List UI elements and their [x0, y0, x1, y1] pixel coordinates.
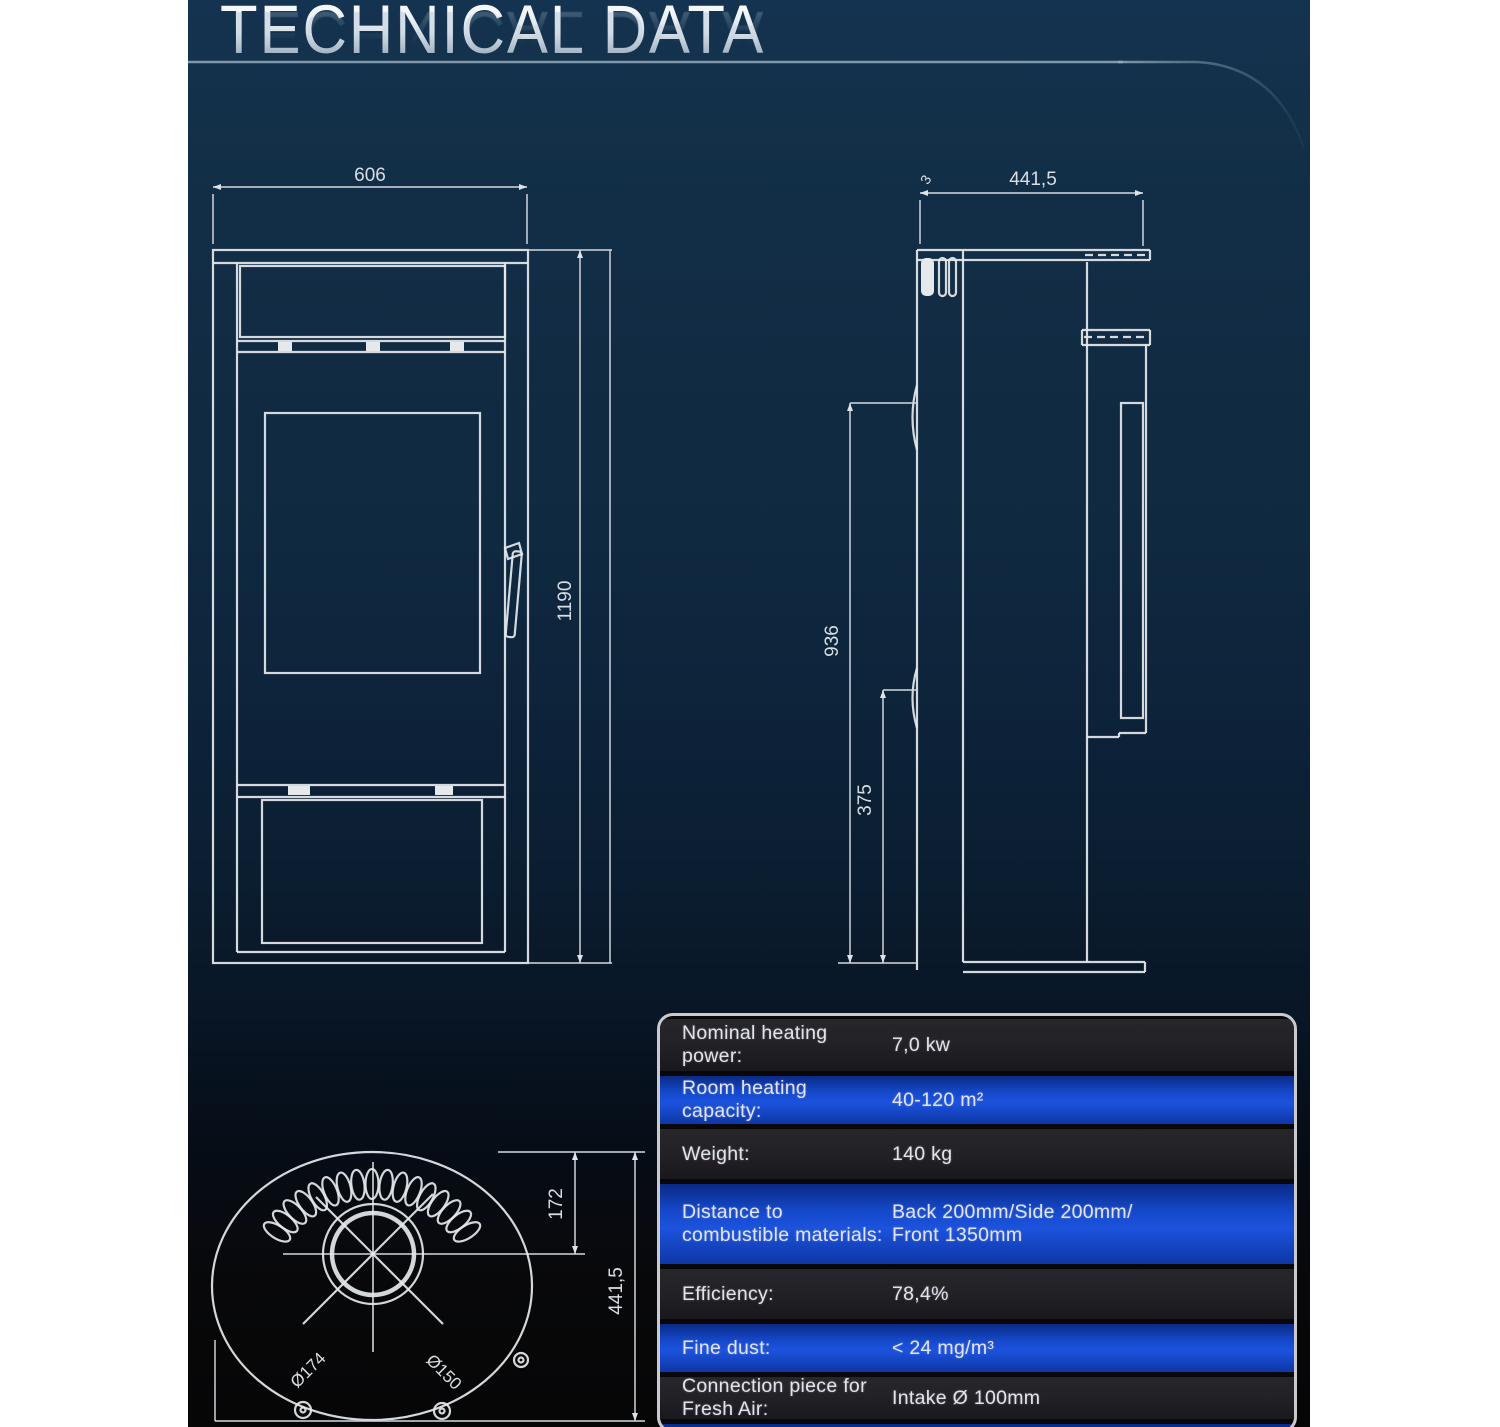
sheet-content: TECHNICAL DATA TECHNICAL DATA — [188, 0, 1310, 1427]
spec-row-fine-dust: Fine dust: < 24 mg/m³ — [660, 1324, 1294, 1372]
spec-row-distance: Distance to combustible materials: Back … — [660, 1184, 1294, 1264]
side-inset-dim: 3 — [917, 172, 935, 187]
spec-row-efficiency: Efficiency: 78,4% — [660, 1269, 1294, 1319]
front-view-drawing — [213, 250, 528, 963]
spec-label: Fine dust: — [660, 1337, 892, 1360]
spec-value: 7,0 kw — [892, 1034, 1294, 1057]
front-height-dim: 1190 — [555, 581, 576, 622]
spec-table: Nominal heating power: 7,0 kw Room heati… — [657, 1013, 1297, 1427]
spec-value: 40-120 m² — [892, 1089, 1294, 1112]
spec-value: 78,4% — [892, 1283, 1294, 1306]
top-view-dimensions — [215, 1152, 645, 1421]
top-view-drawing — [212, 1152, 585, 1420]
technical-data-sheet: TECHNICAL DATA TECHNICAL DATA — [0, 0, 1500, 1427]
top-depth-dim: 441,5 — [606, 1267, 627, 1315]
spec-value: Back 200mm/Side 200mm/ Front 1350mm — [892, 1201, 1294, 1247]
flue-inner-dia-label: Ø150 — [422, 1351, 465, 1394]
spec-value: Intake Ø 100mm — [892, 1387, 1294, 1410]
spec-label: Efficiency: — [660, 1283, 892, 1306]
spec-label: Weight: — [660, 1143, 892, 1166]
side-view-drawing — [913, 250, 1151, 972]
front-view-dimensions — [213, 187, 612, 963]
door-handle — [505, 543, 522, 637]
front-width-dim: 606 — [354, 165, 386, 186]
title-underline-swoosh — [188, 62, 1304, 148]
side-upper-height-dim: 936 — [822, 625, 843, 657]
spec-label: Distance to combustible materials: — [660, 1201, 892, 1247]
spec-label: Room heating capacity: — [660, 1077, 892, 1123]
top-vent-slots — [261, 1169, 483, 1245]
side-view-dimensions — [838, 193, 1143, 963]
spec-value: < 24 mg/m³ — [892, 1337, 1294, 1360]
spec-value: 140 kg — [892, 1143, 1294, 1166]
spec-value-line2: Front 1350mm — [892, 1224, 1294, 1247]
spec-row-fresh-air: Connection piece for Fresh Air: Intake Ø… — [660, 1377, 1294, 1419]
spec-row-nominal-power: Nominal heating power: 7,0 kw — [660, 1019, 1294, 1071]
stove-feet — [295, 1353, 528, 1419]
side-lower-height-dim: 375 — [855, 784, 876, 816]
spec-row-room-capacity: Room heating capacity: 40-120 m² — [660, 1076, 1294, 1124]
flue-outer-dia-label: Ø174 — [287, 1349, 330, 1392]
spec-row-weight: Weight: 140 kg — [660, 1129, 1294, 1179]
side-depth-dim: 441,5 — [1009, 169, 1057, 190]
spec-value-line1: Back 200mm/Side 200mm/ — [892, 1201, 1294, 1224]
flue-offset-dim: 172 — [546, 1188, 567, 1220]
spec-label: Connection piece for Fresh Air: — [660, 1375, 892, 1421]
spec-label: Nominal heating power: — [660, 1022, 892, 1068]
